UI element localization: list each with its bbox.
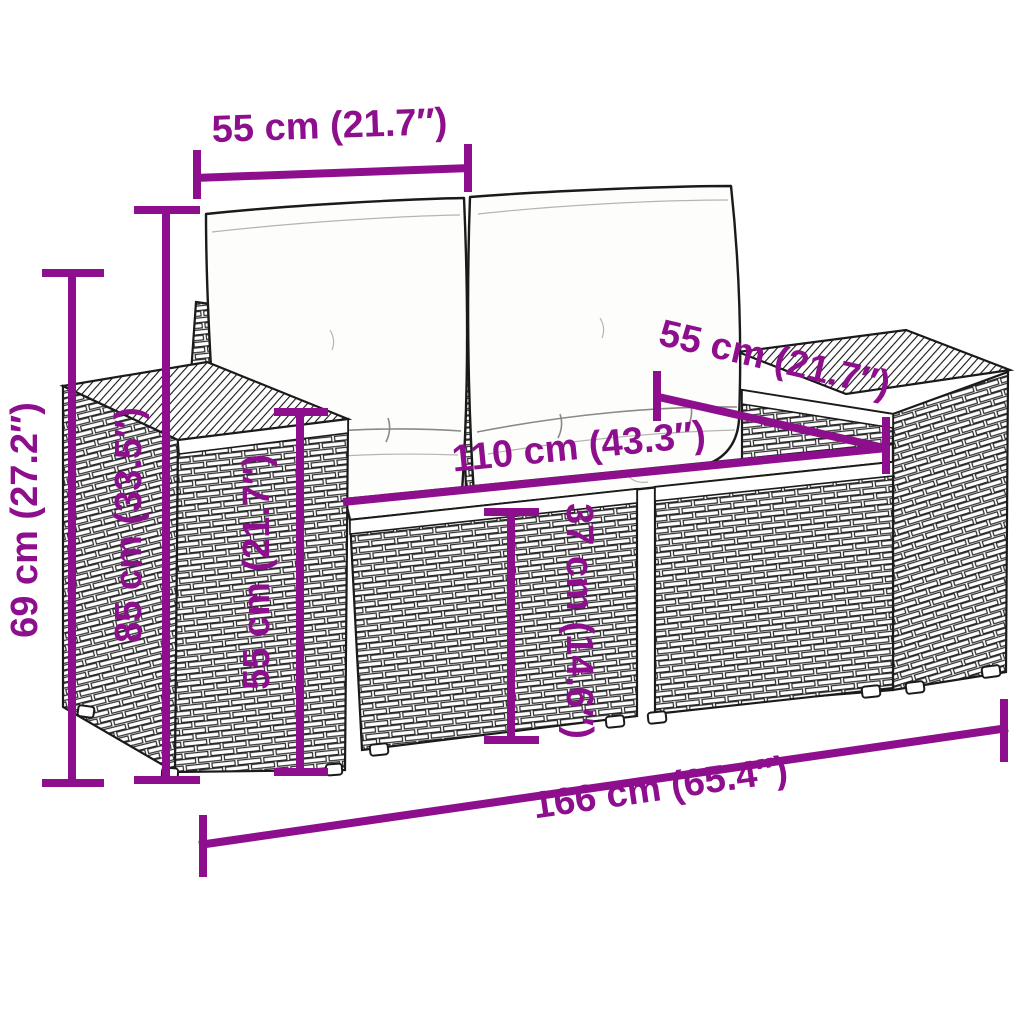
dimension-label: 37 cm (14.6″) [558,503,600,739]
dimension-cushion-width: 55 cm (21.7″) [194,101,471,199]
left-armrest [63,362,348,780]
dimension-label: 166 cm (65.4″) [530,749,790,828]
dimension-label: 69 cm (27.2″) [4,402,46,638]
sofa-dimension-drawing: 55 cm (21.7″) 55 cm (21.7″) 110 cm (43.3… [0,0,1024,1024]
dimension-label: 55 cm (21.7″) [236,454,278,690]
dimension-diagram: 55 cm (21.7″) 55 cm (21.7″) 110 cm (43.3… [0,0,1024,1024]
dimension-label: 85 cm (33.5″) [108,407,150,643]
dimension-label: 55 cm (21.7″) [211,101,448,151]
seat-box-right [655,462,893,714]
right-armrest-side-face [893,372,1008,690]
